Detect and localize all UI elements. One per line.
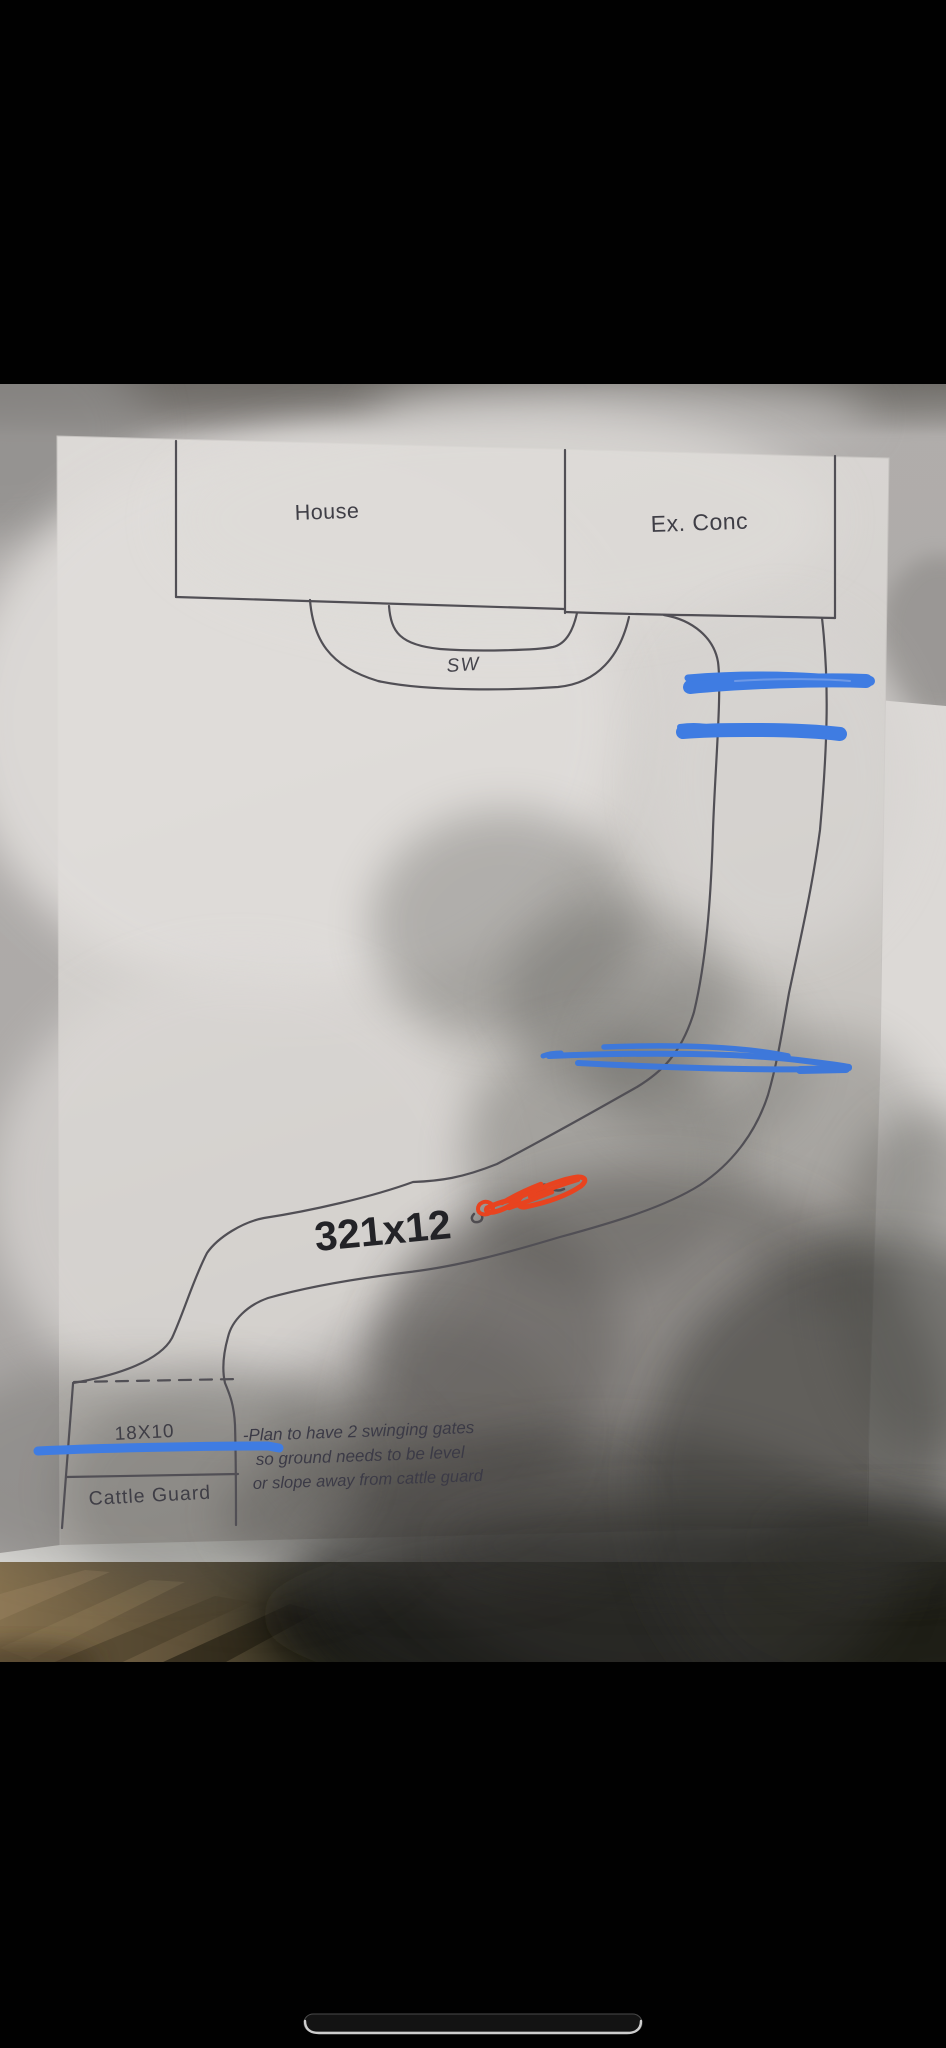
svg-text:SW: SW: [446, 654, 482, 677]
svg-text:18X10: 18X10: [114, 1421, 175, 1445]
svg-text:Ex. Conc: Ex. Conc: [650, 508, 748, 537]
svg-text:House: House: [294, 499, 359, 525]
